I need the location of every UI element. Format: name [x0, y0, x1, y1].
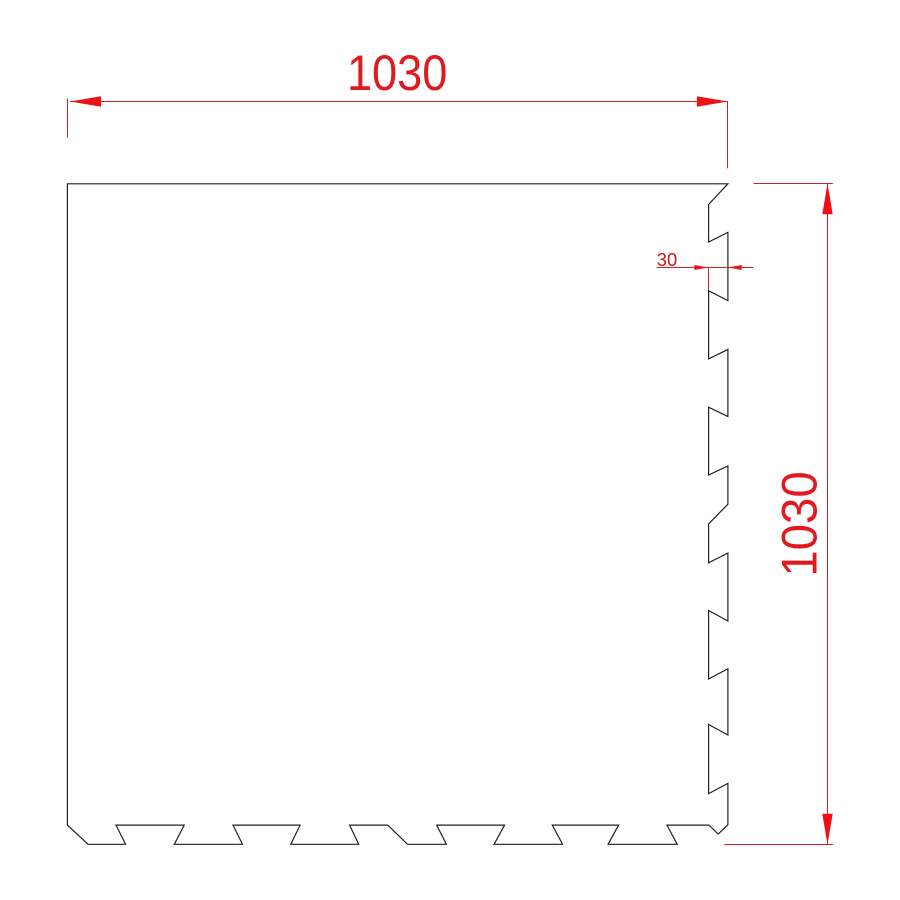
svg-text:1030: 1030 [772, 471, 828, 577]
svg-text:30: 30 [657, 249, 677, 270]
svg-text:1030: 1030 [347, 45, 448, 101]
